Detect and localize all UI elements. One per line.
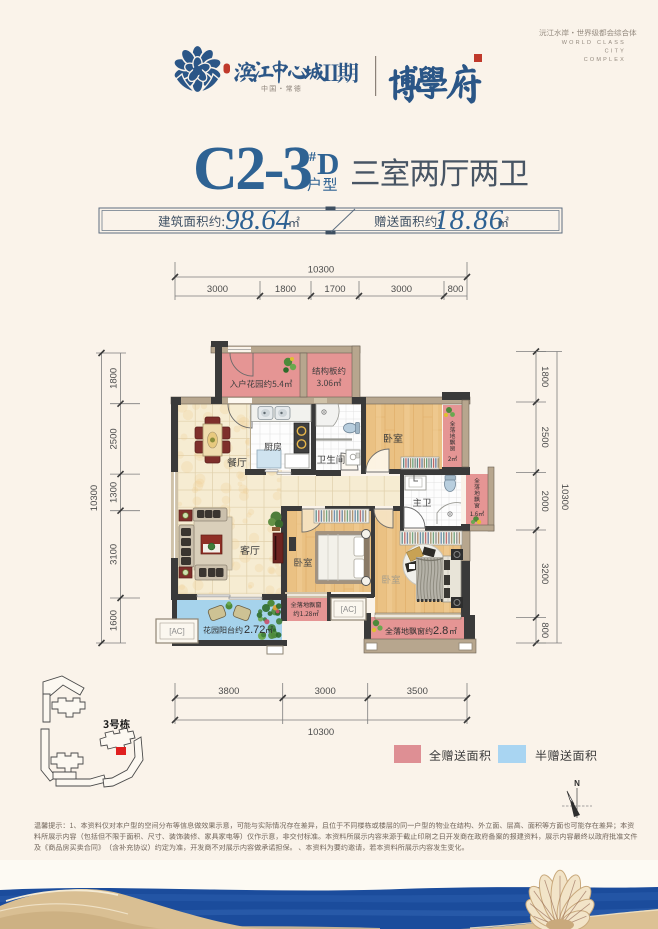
svg-text:800: 800 [539,622,550,638]
svg-text:1300: 1300 [109,482,120,503]
svg-text:18.86: 18.86 [434,204,504,236]
svg-text:3800: 3800 [218,686,239,697]
svg-text:2.72: 2.72 [244,624,265,636]
svg-text:COMPLEX: COMPLEX [584,57,626,63]
svg-text:#: # [309,150,316,165]
svg-text:10300: 10300 [559,484,570,510]
svg-text:3500: 3500 [407,686,428,697]
svg-text:CITY: CITY [605,49,626,55]
svg-text:[AC]: [AC] [169,627,185,636]
svg-text:800: 800 [448,284,464,295]
svg-text:1700: 1700 [324,284,345,295]
svg-text:1800: 1800 [539,366,550,387]
svg-text:1800: 1800 [109,368,120,389]
svg-text:D: D [317,146,339,181]
svg-text:3000: 3000 [315,686,336,697]
svg-text:98.64: 98.64 [225,204,290,236]
svg-text:1600: 1600 [109,610,120,631]
svg-text:C2-3: C2-3 [193,135,311,203]
svg-text:[AC]: [AC] [341,605,357,614]
svg-text:10300: 10300 [308,727,334,738]
svg-text:WORLD CLASS: WORLD CLASS [562,40,626,46]
svg-text:2000: 2000 [539,491,550,512]
svg-text:10300: 10300 [308,265,334,276]
svg-text:3000: 3000 [207,284,228,295]
svg-text:1800: 1800 [275,284,296,295]
svg-text:2500: 2500 [109,428,120,449]
svg-text:N: N [574,779,580,788]
svg-text:3000: 3000 [391,284,412,295]
svg-text:3200: 3200 [539,563,550,584]
svg-text:10300: 10300 [89,485,100,511]
svg-text:2.8: 2.8 [433,625,448,637]
svg-text:3100: 3100 [109,544,120,565]
svg-text:2500: 2500 [539,427,550,448]
